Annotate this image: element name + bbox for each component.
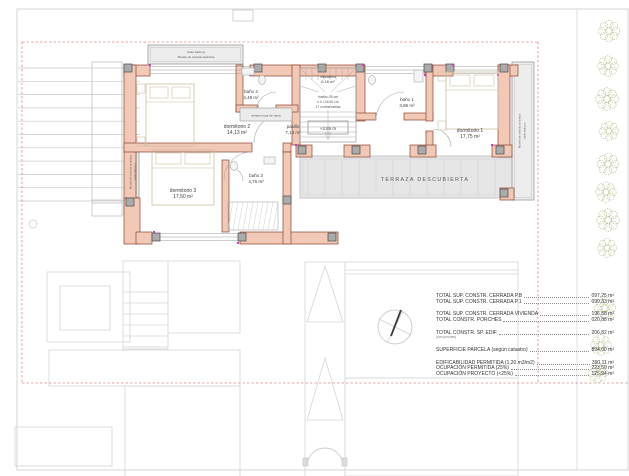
- room-label-bano-1: baño 1: [400, 97, 414, 102]
- balcony-top-label-1: Juliet balcony: [187, 50, 206, 54]
- row-label: TOTAL CONSTR. PORCHES: [436, 317, 501, 323]
- leader-line: [537, 364, 590, 365]
- leader-line: [524, 297, 589, 298]
- level-mark: +3,85 m: [320, 126, 337, 131]
- leader-line: [511, 369, 590, 370]
- terrace-label: TERRAZA DESCUBIERTA: [381, 177, 469, 183]
- screen-right-label-2: Juliet balcony: [523, 122, 527, 140]
- closet-label: armario ropa de cama: [251, 114, 281, 118]
- row-value: 125,94 m²: [591, 371, 614, 377]
- row-label: SUPERFICIE PARCELA (según catastro): [436, 347, 528, 353]
- table-row: SUPERFICIE PARCELA (según catastro)894,0…: [436, 347, 614, 353]
- leader-line: [530, 351, 590, 352]
- leader-line: [540, 315, 589, 316]
- screen-left-label-2: Juliet balcony: [133, 163, 137, 181]
- table-row: TOTAL CONSTR. PORCHES020,88 m²: [436, 317, 614, 323]
- row-value: 894,00 m²: [591, 347, 614, 353]
- screen-right-label-1: Murete de celosía cerámica: [518, 113, 522, 148]
- room-area-dormitorio-3: 17,50 m²: [173, 194, 193, 200]
- room-area-bano-2: 4,49 m²: [243, 95, 259, 100]
- leader-line: [524, 303, 590, 304]
- leader-line: [515, 375, 590, 376]
- columns: [124, 64, 508, 241]
- row-value: 020,88 m²: [591, 317, 614, 323]
- room-area-pasillo: 7,13 m²: [285, 130, 301, 135]
- room-label-bano-3: baño 3: [249, 173, 263, 178]
- room-area-dormitorio-2: 14,13 m²: [227, 130, 247, 136]
- north-arrow-icon: [378, 310, 412, 344]
- row-value: 099,33 m²: [591, 299, 614, 305]
- room-area-bano-3: 4,76 m²: [248, 179, 264, 184]
- row-label: TOTAL SUP. CONSTR. CERRADA P.1: [436, 299, 522, 305]
- screen-left-label-1: Murete de celosía cerámica: [129, 154, 133, 189]
- table-row: TOTAL SUP. CONSTR. CERRADA P.1099,33 m²: [436, 299, 614, 305]
- stair-note-1: huella=28 cm: [318, 95, 338, 99]
- table-row-subnote: (con porches): [436, 336, 614, 340]
- pergola-roof-lines: [18, 62, 140, 228]
- row-label: OCUPACIÓN PROYECTO (<25%): [436, 371, 513, 377]
- leader-line: [499, 334, 590, 335]
- room-label-pasillo: pasillo: [287, 124, 300, 129]
- room-label-bano-2: baño 2: [244, 89, 258, 94]
- plan-sheet: { "drawing_type": "first floor architect…: [0, 0, 629, 476]
- balcony-top-label-2: Murete de celosía cerámica: [178, 55, 215, 59]
- walls: [124, 65, 518, 244]
- summary-table: TOTAL SUP. CONSTR. CERRADA P.B097,25 m² …: [436, 293, 614, 377]
- stair-note-2: c.h.=18,50 cm: [317, 100, 339, 104]
- stair-note-3: 17 contrahuellas: [316, 105, 341, 109]
- room-area-dormitorio-1: 17,75 m²: [460, 134, 480, 140]
- row-subnote: (con porches): [436, 335, 456, 339]
- table-row: OCUPACIÓN PROYECTO (<25%)125,94 m²: [436, 371, 614, 377]
- room-area-bano-1: 3,86 m²: [399, 103, 415, 108]
- room-area-escalera: 6,16 m²: [321, 79, 335, 84]
- leader-line: [503, 321, 589, 322]
- floor-plan-canvas: Juliet balcony Murete de celosía cerámic…: [0, 0, 629, 476]
- row-value: 206,82 m²: [591, 330, 614, 336]
